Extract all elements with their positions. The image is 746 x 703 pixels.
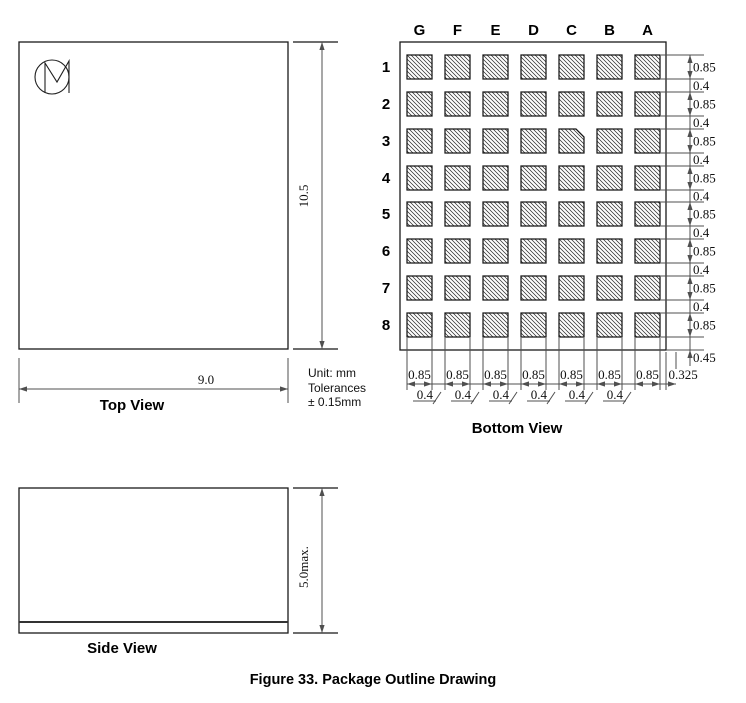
pad-G7 — [407, 276, 432, 300]
units-note-line2: Tolerances — [308, 381, 366, 395]
right-dim-label: 0.4 — [693, 152, 710, 167]
pad-E6 — [483, 239, 508, 263]
pad-B8 — [597, 313, 622, 337]
side-view-label: Side View — [87, 640, 157, 657]
pad-F1 — [445, 55, 470, 79]
pad-D4 — [521, 166, 546, 190]
pad-D7 — [521, 276, 546, 300]
pad-C4 — [559, 166, 584, 190]
pad-B4 — [597, 166, 622, 190]
pad-C3 — [559, 129, 584, 153]
row-label-5: 5 — [382, 206, 390, 223]
pad-width-dim-label: 0.85 — [408, 367, 431, 382]
top-view-outline — [19, 42, 288, 349]
pad-A5 — [635, 202, 660, 226]
pad-width-dim-label: 0.85 — [636, 367, 659, 382]
pad-F5 — [445, 202, 470, 226]
pad-D3 — [521, 129, 546, 153]
bottom-view-outline — [400, 42, 666, 350]
pad-F8 — [445, 313, 470, 337]
pad-gap-dim-label: 0.4 — [531, 387, 548, 402]
package-outline-drawing: 10.5 9.0 Top View Unit: mm Tolerances ± … — [0, 0, 746, 703]
row-label-4: 4 — [382, 170, 391, 187]
pad-width-dim-label: 0.85 — [446, 367, 469, 382]
top-view-label: Top View — [100, 397, 165, 414]
pad-B3 — [597, 129, 622, 153]
row-label-3: 3 — [382, 133, 390, 150]
pad-gap-dim-label: 0.4 — [493, 387, 510, 402]
pad-gap-dim-label: 0.4 — [417, 387, 434, 402]
pad-C7 — [559, 276, 584, 300]
pad-B7 — [597, 276, 622, 300]
pad-A3 — [635, 129, 660, 153]
side-view-height-dim-label: 5.0max. — [296, 546, 311, 588]
pad-B2 — [597, 92, 622, 116]
pad-E5 — [483, 202, 508, 226]
pad-E8 — [483, 313, 508, 337]
units-note-line3: ± 0.15mm — [308, 395, 361, 409]
pad-G8 — [407, 313, 432, 337]
pad-E4 — [483, 166, 508, 190]
right-dim-label: 0.85 — [693, 134, 716, 149]
side-view-outline — [19, 488, 288, 633]
pad-G4 — [407, 166, 432, 190]
units-note-line1: Unit: mm — [308, 366, 356, 380]
pad-F3 — [445, 129, 470, 153]
col-label-E: E — [490, 22, 500, 39]
pad-A2 — [635, 92, 660, 116]
pad-A6 — [635, 239, 660, 263]
pad-G6 — [407, 239, 432, 263]
row-label-7: 7 — [382, 280, 390, 297]
right-dim-label: 0.4 — [693, 78, 710, 93]
pad-B5 — [597, 202, 622, 226]
right-dim-label: 0.4 — [693, 262, 710, 277]
pad-A4 — [635, 166, 660, 190]
pad-width-dim-label: 0.85 — [598, 367, 621, 382]
pad-gap-dim-label: 0.4 — [607, 387, 624, 402]
row-label-8: 8 — [382, 317, 390, 334]
col-label-F: F — [453, 22, 462, 39]
right-dim-label: 0.4 — [693, 115, 710, 130]
pad-B6 — [597, 239, 622, 263]
pad-G2 — [407, 92, 432, 116]
pad-gap-dim-label: 0.4 — [455, 387, 472, 402]
row-label-6: 6 — [382, 243, 390, 260]
right-dim-label: 0.85 — [693, 207, 716, 222]
pad-A8 — [635, 313, 660, 337]
right-dim-label: 0.85 — [693, 244, 716, 259]
pad-F4 — [445, 166, 470, 190]
pad-F2 — [445, 92, 470, 116]
figure-caption: Figure 33. Package Outline Drawing — [250, 672, 497, 688]
pad-D5 — [521, 202, 546, 226]
pad-E7 — [483, 276, 508, 300]
pad-E3 — [483, 129, 508, 153]
right-dim-label: 0.4 — [693, 225, 710, 240]
pad-A1 — [635, 55, 660, 79]
right-dim-label: 0.85 — [693, 281, 716, 296]
right-dim-label: 0.85 — [693, 171, 716, 186]
col-label-A: A — [642, 22, 653, 39]
pad-B1 — [597, 55, 622, 79]
pad-D1 — [521, 55, 546, 79]
col-label-D: D — [528, 22, 539, 39]
pad-E2 — [483, 92, 508, 116]
bottom-view-label: Bottom View — [472, 420, 563, 437]
pad-width-dim-label: 0.85 — [560, 367, 583, 382]
bottom-edge-dim-label: 0.45 — [693, 350, 716, 365]
col-label-C: C — [566, 22, 577, 39]
pad-C8 — [559, 313, 584, 337]
pad-G3 — [407, 129, 432, 153]
right-dim-label: 0.85 — [693, 318, 716, 333]
pad-C1 — [559, 55, 584, 79]
pad-width-dim-label: 0.85 — [522, 367, 545, 382]
pad-F7 — [445, 276, 470, 300]
right-dim-label: 0.4 — [693, 299, 710, 314]
pad-D8 — [521, 313, 546, 337]
pad-A7 — [635, 276, 660, 300]
pad-gap-dim-label: 0.4 — [569, 387, 586, 402]
pad-E1 — [483, 55, 508, 79]
right-dim-label: 0.4 — [693, 189, 710, 204]
pad-width-dim-label: 0.85 — [484, 367, 507, 382]
pad-F6 — [445, 239, 470, 263]
pad-G5 — [407, 202, 432, 226]
row-label-1: 1 — [382, 59, 390, 76]
pad-G1 — [407, 55, 432, 79]
col-label-B: B — [604, 22, 615, 39]
pad-C6 — [559, 239, 584, 263]
right-dim-label: 0.85 — [693, 60, 716, 75]
pad-D6 — [521, 239, 546, 263]
right-margin-dim-label: 0.325 — [669, 367, 698, 382]
pad-C2 — [559, 92, 584, 116]
row-label-2: 2 — [382, 96, 390, 113]
pad-C5 — [559, 202, 584, 226]
col-label-G: G — [414, 22, 426, 39]
pad-D2 — [521, 92, 546, 116]
top-view-width-dim-label: 9.0 — [198, 372, 214, 387]
right-dim-label: 0.85 — [693, 97, 716, 112]
package-outline-page: 10.5 9.0 Top View Unit: mm Tolerances ± … — [0, 0, 746, 703]
top-view-height-dim-label: 10.5 — [296, 185, 311, 208]
